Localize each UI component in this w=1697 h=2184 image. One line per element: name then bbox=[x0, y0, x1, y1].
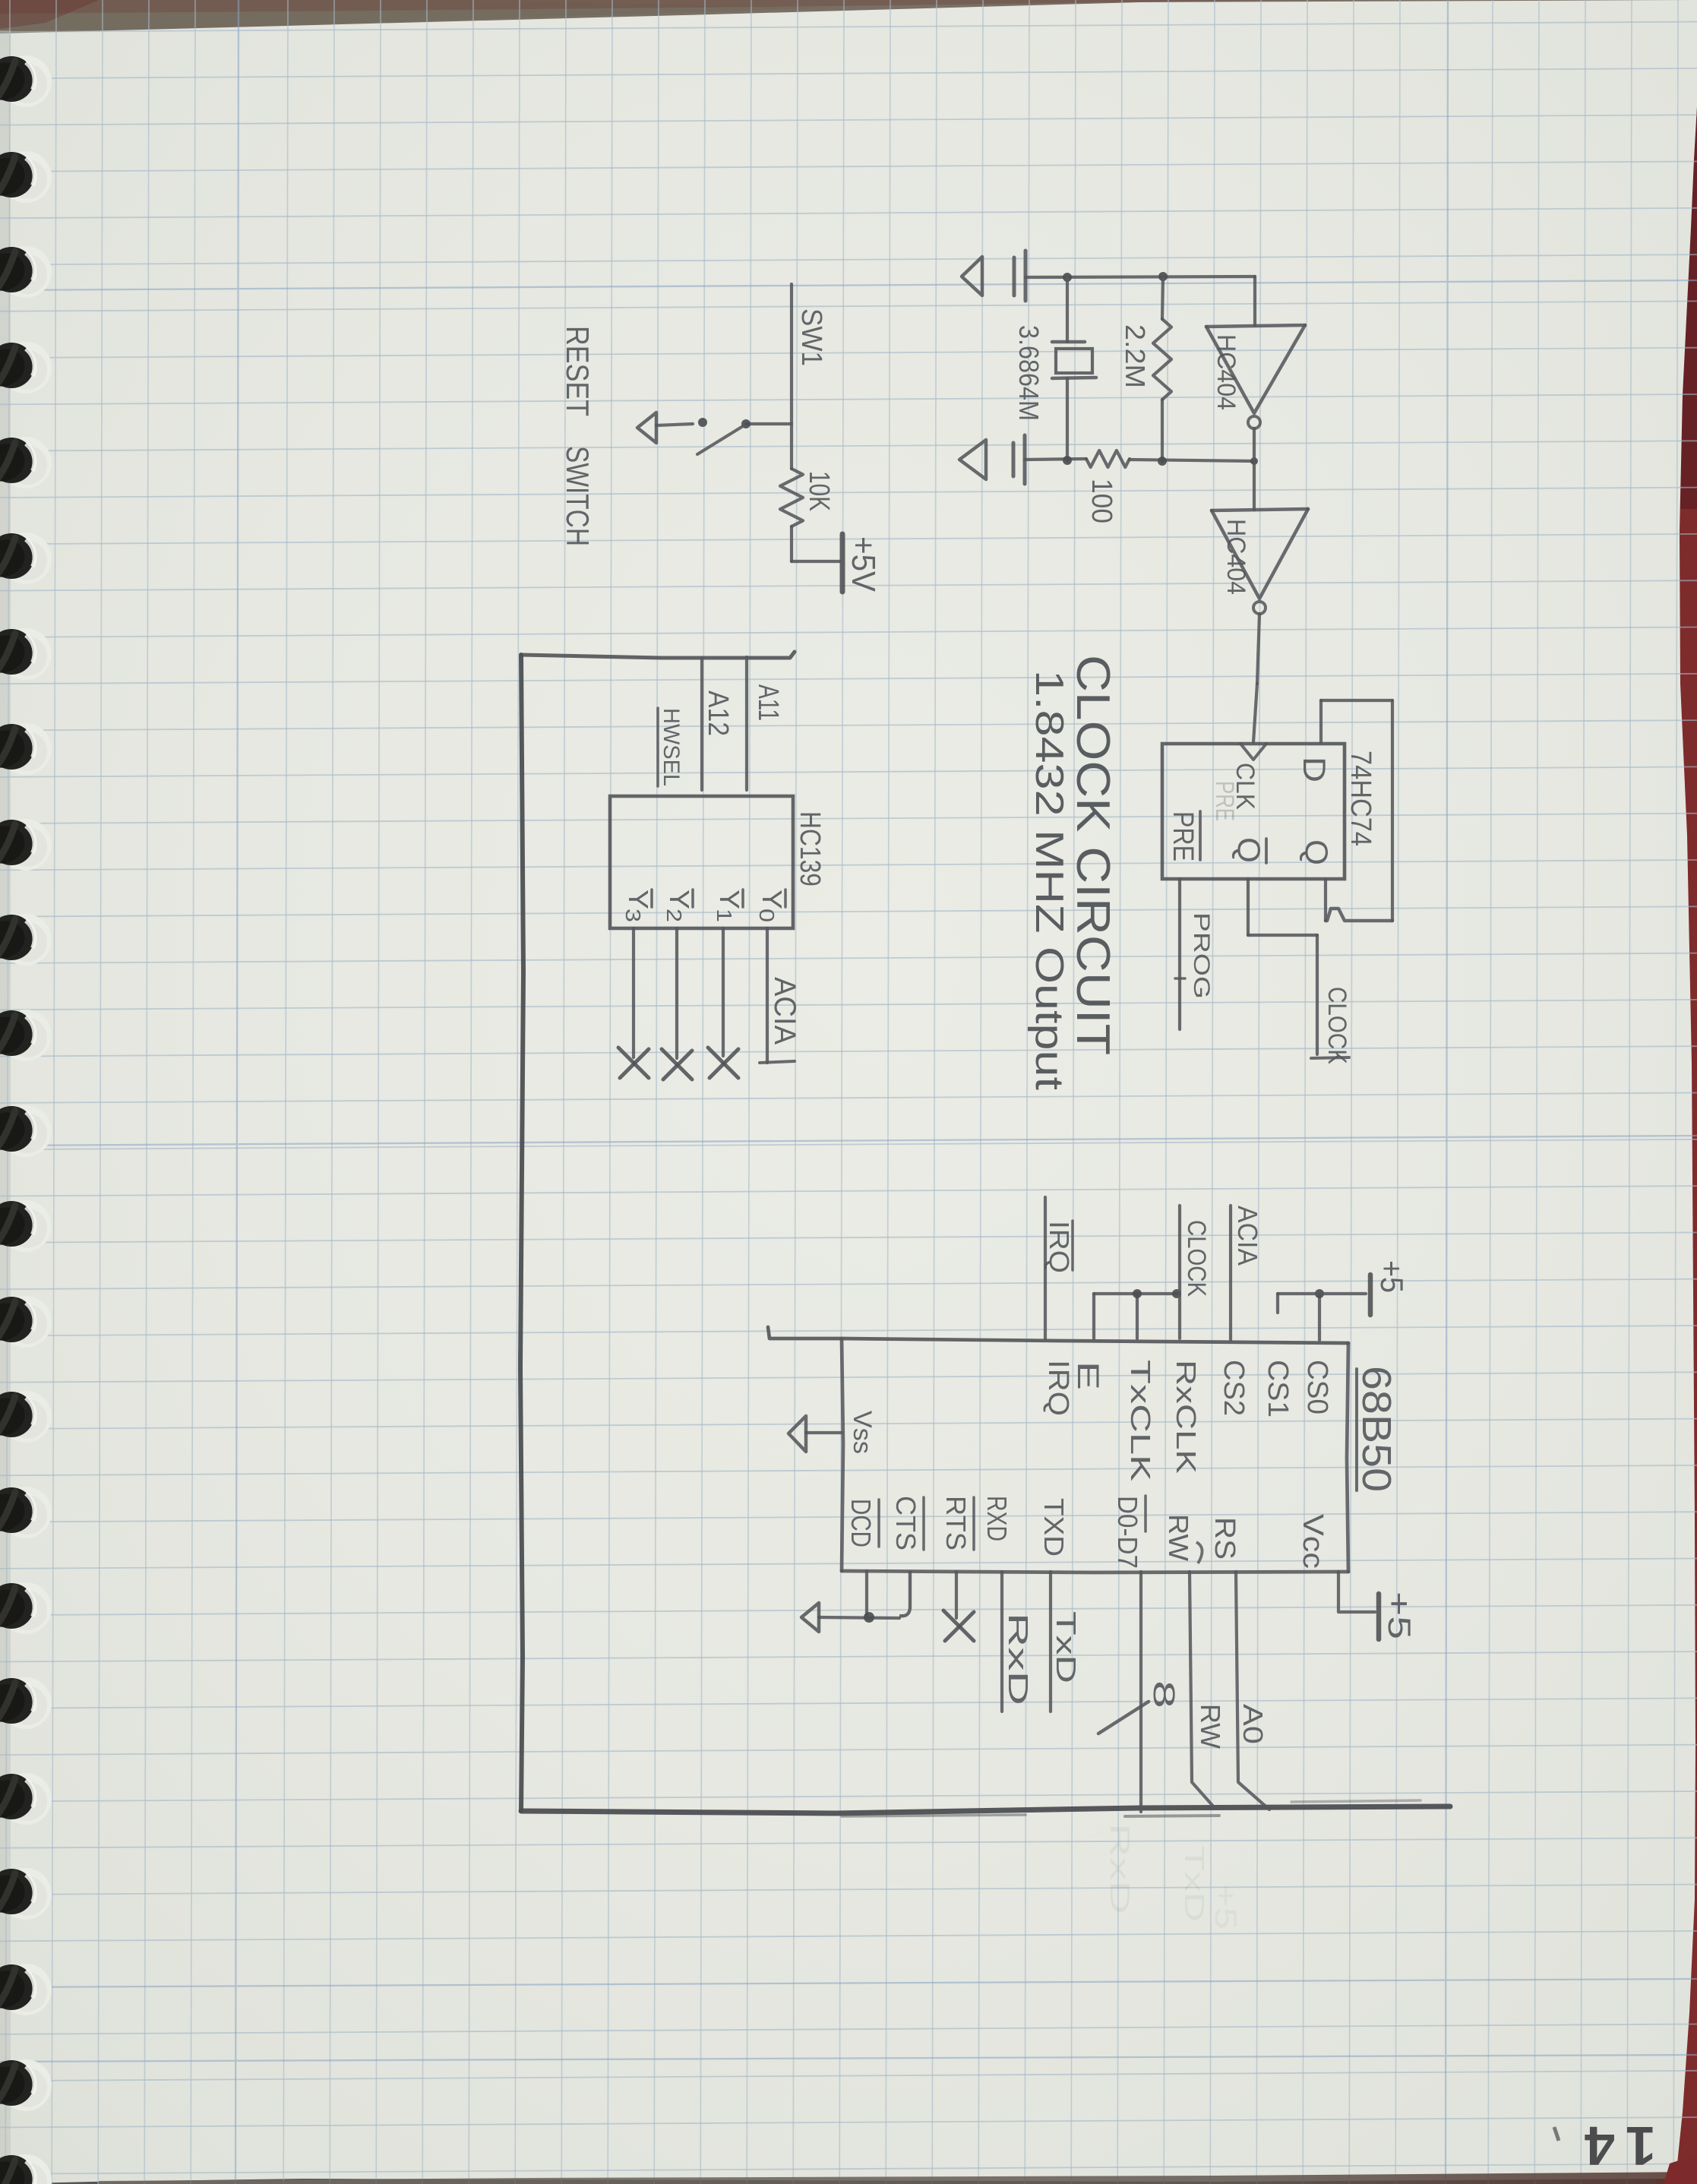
svg-text:A12: A12 bbox=[702, 691, 734, 736]
svg-text:SWITCH: SWITCH bbox=[560, 446, 596, 546]
svg-text:HWSEL: HWSEL bbox=[659, 708, 684, 786]
svg-text:E: E bbox=[1071, 1361, 1104, 1390]
svg-text:DCD: DCD bbox=[845, 1499, 877, 1547]
svg-text:D: D bbox=[1297, 757, 1332, 782]
svg-text:CS1: CS1 bbox=[1262, 1360, 1294, 1418]
svg-text:+5: +5 bbox=[1209, 1884, 1242, 1930]
svg-text:Y: Y bbox=[757, 890, 788, 909]
svg-text:D0-D7: D0-D7 bbox=[1112, 1496, 1143, 1569]
svg-text:Y: Y bbox=[714, 890, 745, 909]
svg-text:RW: RW bbox=[1195, 1704, 1226, 1749]
svg-text:3.6864M: 3.6864M bbox=[1013, 325, 1044, 421]
svg-text:PRE: PRE bbox=[1167, 811, 1199, 861]
svg-text:8: 8 bbox=[1147, 1680, 1180, 1708]
svg-text:CLOCK: CLOCK bbox=[1323, 987, 1351, 1064]
svg-text:RTS: RTS bbox=[940, 1496, 972, 1550]
svg-text:SW1: SW1 bbox=[795, 308, 827, 366]
svg-text:CS0: CS0 bbox=[1301, 1360, 1333, 1414]
svg-text:1.8432 MHZ Output: 1.8432 MHZ Output bbox=[1027, 670, 1071, 1091]
svg-text:RxD: RxD bbox=[1003, 1613, 1034, 1705]
svg-text:ACIA: ACIA bbox=[1232, 1206, 1263, 1266]
svg-text:PRE: PRE bbox=[1210, 781, 1239, 821]
svg-text:A11: A11 bbox=[752, 684, 784, 721]
svg-text:14: 14 bbox=[1574, 2115, 1656, 2176]
svg-text:0: 0 bbox=[755, 909, 779, 922]
svg-text:+5: +5 bbox=[1374, 1260, 1410, 1293]
svg-text:74HC74: 74HC74 bbox=[1345, 751, 1376, 846]
svg-text:Vcc: Vcc bbox=[1297, 1514, 1329, 1569]
svg-text:TxCLK: TxCLK bbox=[1125, 1360, 1156, 1481]
svg-text:CS2: CS2 bbox=[1218, 1360, 1250, 1416]
svg-text:Q: Q bbox=[1231, 837, 1267, 863]
svg-text:RXD: RXD bbox=[981, 1496, 1013, 1541]
svg-text:Y: Y bbox=[664, 890, 695, 909]
svg-text:CLOCK: CLOCK bbox=[1182, 1220, 1211, 1297]
svg-text:HC139: HC139 bbox=[794, 811, 826, 887]
svg-text:Q: Q bbox=[1299, 839, 1335, 865]
svg-text:RxCLK: RxCLK bbox=[1171, 1360, 1202, 1474]
svg-text:100: 100 bbox=[1086, 479, 1117, 523]
svg-text:+5V: +5V bbox=[845, 536, 882, 593]
svg-text:PROG: PROG bbox=[1189, 912, 1214, 999]
svg-text:Y: Y bbox=[623, 890, 654, 909]
svg-text:68B50: 68B50 bbox=[1354, 1366, 1399, 1492]
svg-text:HC404: HC404 bbox=[1221, 519, 1250, 595]
svg-text:CTS: CTS bbox=[890, 1496, 921, 1550]
svg-text:IRQ: IRQ bbox=[1042, 1360, 1074, 1416]
svg-text:1: 1 bbox=[713, 909, 736, 922]
svg-text:Vss: Vss bbox=[848, 1411, 877, 1454]
svg-text:+5: +5 bbox=[1382, 1591, 1417, 1639]
svg-text:ACIA: ACIA bbox=[768, 977, 801, 1045]
svg-text:RESET: RESET bbox=[560, 326, 596, 416]
svg-text:CLOCK CIRCUIT: CLOCK CIRCUIT bbox=[1067, 655, 1119, 1055]
svg-text:RS: RS bbox=[1209, 1517, 1240, 1560]
svg-text:TxD: TxD bbox=[1051, 1611, 1082, 1683]
svg-text:10K: 10K bbox=[803, 471, 835, 511]
svg-text:2.2M: 2.2M bbox=[1120, 324, 1151, 388]
svg-text:2: 2 bbox=[662, 909, 686, 922]
svg-text:A0: A0 bbox=[1237, 1704, 1269, 1744]
svg-text:IRQ: IRQ bbox=[1044, 1221, 1075, 1273]
svg-text:HC404: HC404 bbox=[1212, 334, 1240, 410]
svg-text:RW: RW bbox=[1163, 1514, 1194, 1561]
svg-text:RxD: RxD bbox=[1104, 1823, 1136, 1914]
svg-text:TXD: TXD bbox=[1038, 1498, 1070, 1557]
svg-text:3: 3 bbox=[621, 909, 645, 922]
svg-text:TxD: TxD bbox=[1179, 1846, 1210, 1922]
